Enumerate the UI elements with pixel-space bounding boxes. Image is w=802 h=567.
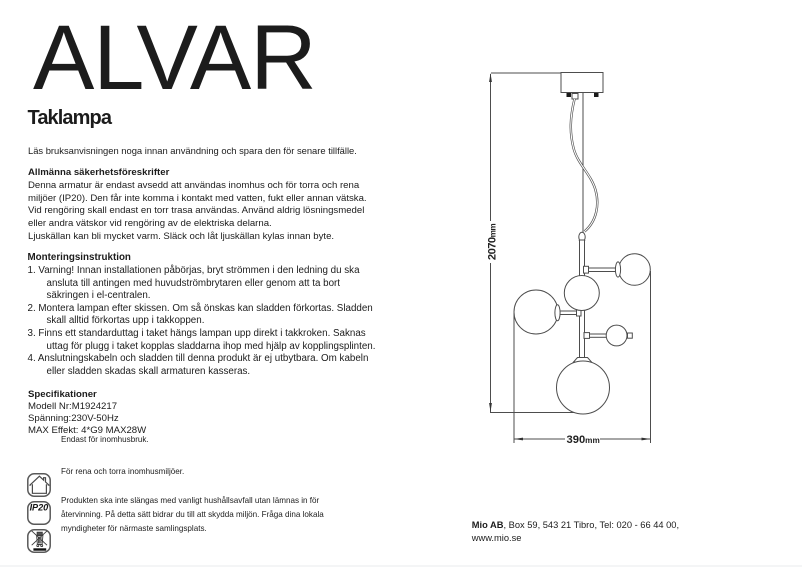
- svg-text:390mm: 390mm: [567, 434, 600, 446]
- svg-text:2070mm: 2070mm: [486, 224, 498, 260]
- svg-text:IP20: IP20: [30, 503, 49, 513]
